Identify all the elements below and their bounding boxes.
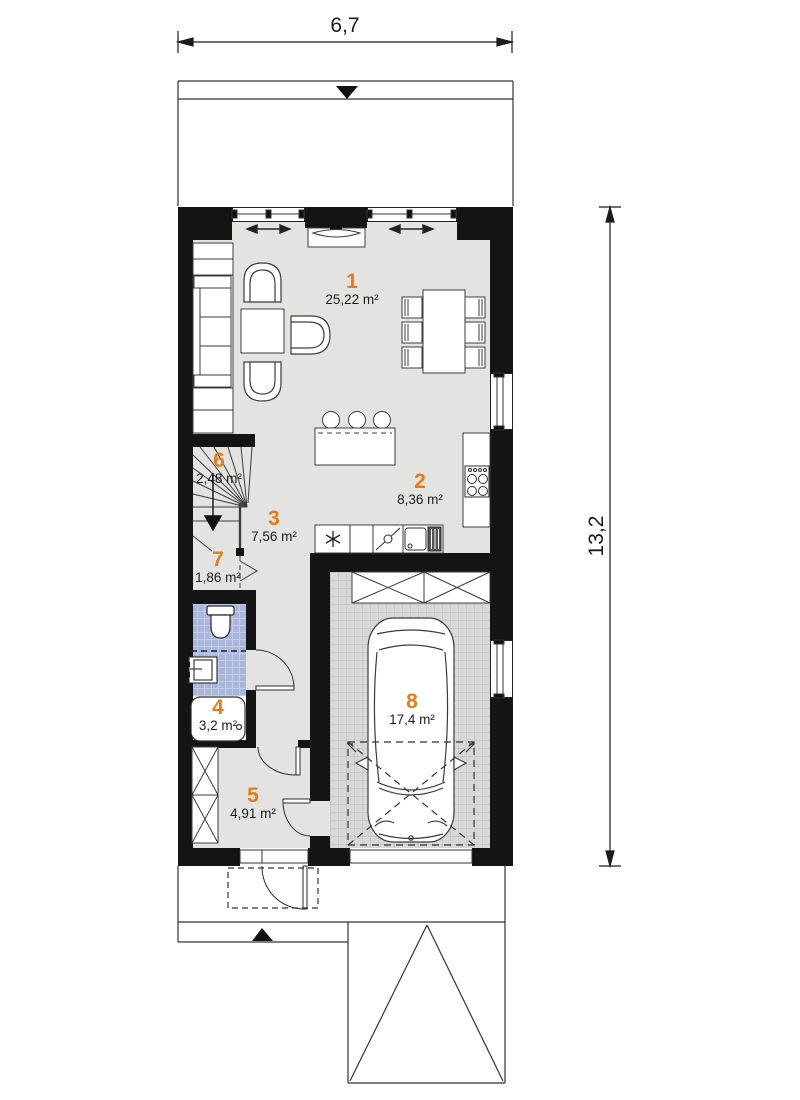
bar-stool-icon [323, 412, 340, 429]
room-area: 2,48 m² [196, 471, 242, 487]
room-label-vestibule: 5 4,91 m² [230, 786, 276, 822]
washbasin-symbol [186, 657, 217, 683]
bathroom-door-swing [256, 650, 294, 690]
vestibule-door-swing [258, 747, 300, 775]
kitchen-island-symbol [315, 412, 395, 466]
floor-plan-canvas: 6,7 13,2 1 25,22 m² 2 8,36 m² 3 7,56 m² … [0, 0, 800, 1100]
room-label-living-room: 1 25,22 m² [325, 272, 378, 308]
terrace-entry-arrow-icon [336, 86, 358, 99]
toilet-symbol [207, 606, 234, 638]
room-number: 7 [195, 550, 241, 570]
room-number: 6 [196, 451, 242, 471]
car-symbol [356, 618, 466, 842]
room-area: 4,91 m² [230, 806, 276, 822]
entry-direction-arrow-icon [252, 928, 273, 941]
bar-stool-icon [374, 412, 391, 429]
room-number: 5 [230, 786, 276, 806]
sofa-symbol [193, 275, 233, 388]
car-mirror-icon [454, 757, 466, 770]
garage-access-door-swing [283, 799, 310, 836]
dining-table-symbol [423, 290, 465, 373]
room-number: 4 [199, 698, 237, 718]
entry-door-swing [262, 866, 307, 909]
room-label-storage: 7 1,86 m² [195, 550, 241, 586]
room-area: 7,56 m² [251, 529, 297, 545]
room-label-kitchen: 2 8,36 m² [397, 472, 443, 508]
room-area: 1,86 m² [195, 570, 241, 586]
tv-cabinet-symbol [308, 225, 365, 247]
wardrobe-symbol [192, 747, 218, 843]
low-headroom-arrow-icon [240, 561, 257, 581]
room-area: 3,2 m² [199, 718, 237, 734]
driveway-outline [178, 866, 505, 1083]
room-number: 2 [397, 472, 443, 492]
garage-door-panel [350, 850, 472, 863]
car-mirror-icon [356, 757, 368, 770]
entry-threshold [240, 850, 308, 863]
room-number: 8 [389, 692, 435, 712]
room-label-bathroom: 4 3,2 m² [199, 698, 237, 734]
room-label-hall: 3 7,56 m² [251, 509, 297, 545]
cooktop-symbol [465, 466, 489, 497]
terrace-outline [178, 81, 513, 206]
plan-linework [0, 0, 800, 1100]
room-number: 3 [251, 509, 297, 529]
room-area: 8,36 m² [397, 492, 443, 508]
kitchen-sink-symbol [405, 527, 441, 551]
storage-cabinets-symbol [352, 572, 490, 603]
dimension-height-label: 13,2 [585, 516, 609, 557]
dining-set-symbol [402, 290, 485, 373]
room-number: 1 [325, 272, 378, 292]
dimension-width-label: 6,7 [330, 14, 359, 38]
coffee-table-symbol [241, 309, 284, 353]
room-area: 25,22 m² [325, 292, 378, 308]
room-area: 17,4 m² [389, 712, 435, 728]
bar-stool-icon [349, 412, 366, 429]
room-label-stairs: 6 2,48 m² [196, 451, 242, 487]
room-label-garage: 8 17,4 m² [389, 692, 435, 728]
